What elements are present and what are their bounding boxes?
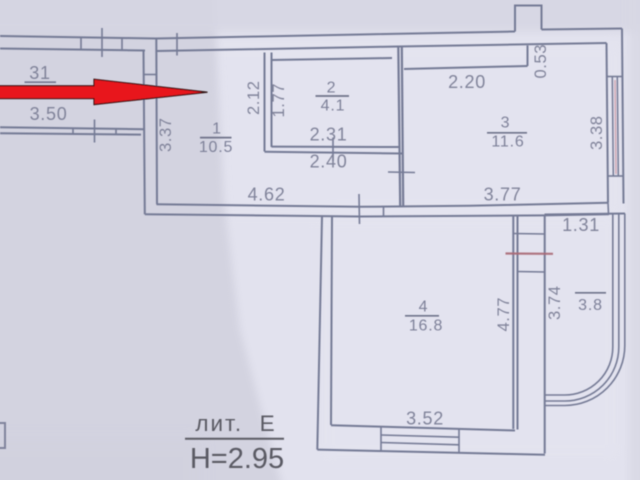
svg-text:Н=2.95: Н=2.95 (190, 443, 284, 475)
svg-text:2.40: 2.40 (310, 152, 348, 172)
svg-text:2.20: 2.20 (448, 72, 486, 92)
svg-text:3.37: 3.37 (157, 117, 175, 152)
svg-text:10.5: 10.5 (199, 139, 233, 156)
svg-text:3.77: 3.77 (484, 185, 522, 205)
svg-text:1: 1 (212, 121, 222, 138)
svg-text:3.52: 3.52 (406, 409, 444, 429)
svg-text:0.53: 0.53 (532, 44, 550, 79)
svg-text:3.8: 3.8 (578, 297, 603, 314)
svg-text:лит. Е: лит. Е (195, 411, 276, 436)
svg-text:11.6: 11.6 (491, 134, 524, 151)
svg-text:3: 3 (501, 115, 511, 132)
svg-text:2.12: 2.12 (245, 80, 263, 115)
svg-text:2.31: 2.31 (310, 125, 348, 145)
svg-text:3.74: 3.74 (546, 285, 564, 320)
svg-text:16.8: 16.8 (409, 318, 443, 335)
svg-text:4: 4 (419, 299, 429, 316)
svg-text:4.62: 4.62 (248, 185, 286, 205)
svg-text:1.77: 1.77 (270, 83, 288, 118)
svg-text:4.1: 4.1 (321, 98, 346, 115)
svg-text:3.50: 3.50 (30, 104, 68, 124)
svg-text:3.38: 3.38 (588, 115, 606, 150)
svg-text:4.77: 4.77 (495, 297, 513, 332)
svg-text:2: 2 (327, 80, 337, 97)
svg-text:31: 31 (29, 63, 50, 83)
svg-text:1.31: 1.31 (562, 215, 600, 235)
